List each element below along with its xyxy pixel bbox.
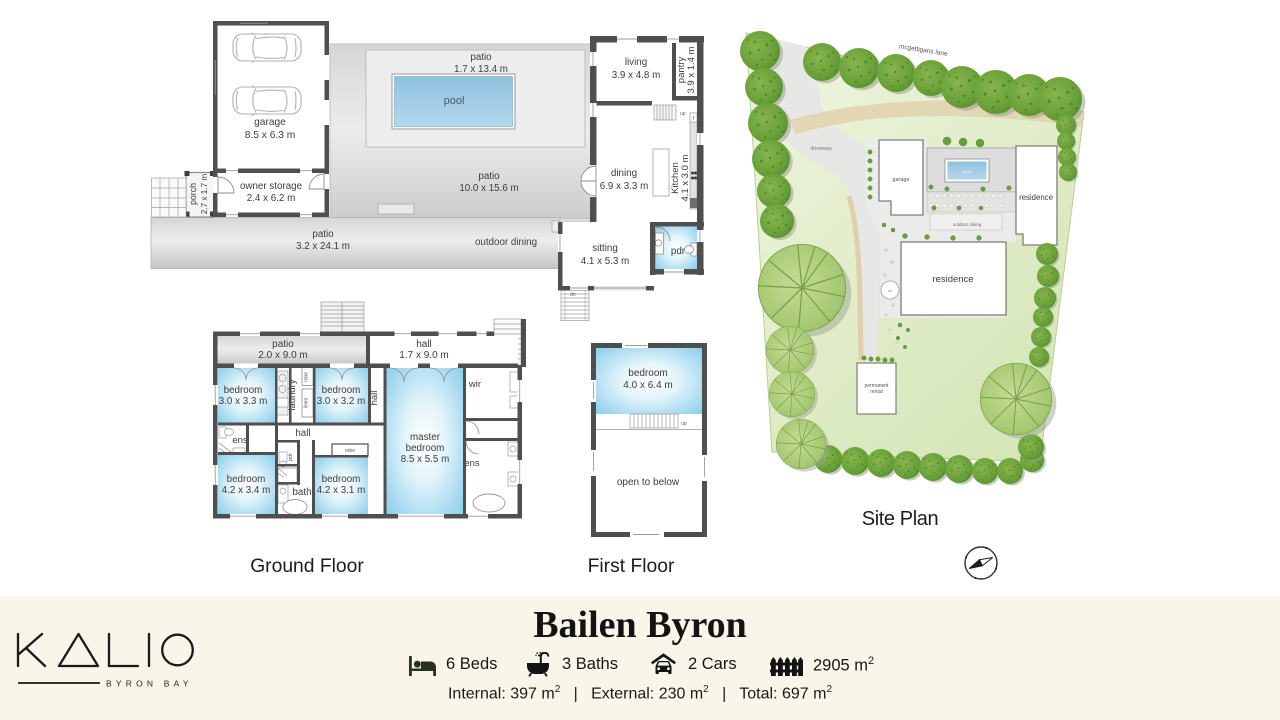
svg-text:dn: dn <box>570 292 576 298</box>
svg-text:2.7 x 1.7 m: 2.7 x 1.7 m <box>200 174 209 215</box>
svg-text:outdoor dining: outdoor dining <box>475 237 537 248</box>
svg-text:robe: robe <box>345 448 355 454</box>
svg-text:pdr: pdr <box>288 453 294 461</box>
svg-text:Site Plan: Site Plan <box>862 508 938 530</box>
svg-text:patio: patio <box>312 229 334 240</box>
svg-text:4.2 x 3.4 m: 4.2 x 3.4 m <box>222 485 270 496</box>
svg-text:ens: ens <box>464 458 480 469</box>
svg-text:up: up <box>680 111 686 117</box>
svg-text:2.4 x 6.2 m: 2.4 x 6.2 m <box>247 193 295 204</box>
svg-text:hall: hall <box>416 339 432 350</box>
svg-text:wir: wir <box>468 379 481 390</box>
svg-text:8.5 x 5.5 m: 8.5 x 5.5 m <box>401 454 449 465</box>
svg-text:3.2 x 24.1 m: 3.2 x 24.1 m <box>296 241 350 252</box>
svg-text:bedroom: bedroom <box>224 385 263 396</box>
svg-text:bedroom: bedroom <box>406 443 445 454</box>
svg-text:4.1 x 5.3 m: 4.1 x 5.3 m <box>581 256 629 267</box>
svg-text:sitting: sitting <box>592 243 618 254</box>
svg-text:3.9 x 4.8 m: 3.9 x 4.8 m <box>612 70 660 81</box>
svg-text:hall: hall <box>295 428 310 439</box>
svg-text:1.7 x 9.0 m: 1.7 x 9.0 m <box>399 350 448 361</box>
svg-text:porch: porch <box>188 183 198 205</box>
svg-text:mcgettigans lane: mcgettigans lane <box>898 43 948 58</box>
svg-text:linen: linen <box>304 398 310 409</box>
svg-text:robe: robe <box>304 372 310 382</box>
svg-text:garage: garage <box>254 117 286 128</box>
svg-text:master: master <box>410 432 441 443</box>
svg-text:patio: patio <box>470 52 492 63</box>
svg-text:pool: pool <box>444 95 465 107</box>
svg-text:bedroom: bedroom <box>227 474 266 485</box>
svg-text:patio: patio <box>478 171 500 182</box>
svg-text:laundry: laundry <box>287 379 298 410</box>
svg-text:rental: rental <box>870 389 883 395</box>
svg-text:bedroom: bedroom <box>322 474 361 485</box>
svg-text:4.2 x 3.1 m: 4.2 x 3.1 m <box>317 485 365 496</box>
svg-text:driveway: driveway <box>810 146 832 152</box>
svg-text:up: up <box>681 421 687 427</box>
svg-text:residence: residence <box>1019 193 1053 202</box>
svg-text:bath: bath <box>292 487 311 498</box>
svg-text:pdr: pdr <box>671 246 686 257</box>
svg-text:4.1 x 3.0 m: 4.1 x 3.0 m <box>680 154 691 201</box>
svg-text:dining: dining <box>611 168 637 179</box>
svg-text:patio: patio <box>272 339 294 350</box>
svg-text:bedroom: bedroom <box>322 385 361 396</box>
svg-text:2.0 x 9.0 m: 2.0 x 9.0 m <box>258 350 307 361</box>
svg-text:outdoor dining: outdoor dining <box>953 222 982 227</box>
svg-text:First Floor: First Floor <box>588 556 675 577</box>
svg-text:garage: garage <box>892 177 909 183</box>
svg-text:3.0 x 3.2 m: 3.0 x 3.2 m <box>317 396 365 407</box>
svg-text:1.7 x 13.4 m: 1.7 x 13.4 m <box>454 64 508 75</box>
svg-text:pool: pool <box>963 169 972 174</box>
svg-text:4.0 x 6.4 m: 4.0 x 6.4 m <box>623 380 672 391</box>
svg-text:bedroom: bedroom <box>628 368 667 379</box>
svg-text:10.0 x 15.6 m: 10.0 x 15.6 m <box>459 183 518 194</box>
svg-text:8.5 x 6.3 m: 8.5 x 6.3 m <box>245 130 295 141</box>
svg-text:living: living <box>625 57 647 68</box>
svg-text:owner storage: owner storage <box>240 181 303 192</box>
svg-text:ens: ens <box>232 435 248 446</box>
svg-text:3.0 x 3.3 m: 3.0 x 3.3 m <box>219 396 267 407</box>
svg-text:6.9 x 3.3 m: 6.9 x 3.3 m <box>600 181 648 192</box>
svg-text:3.9 x 1.4 m: 3.9 x 1.4 m <box>686 46 697 93</box>
svg-text:open to below: open to below <box>617 477 680 488</box>
svg-text:Ground Floor: Ground Floor <box>250 556 364 577</box>
svg-text:residence: residence <box>932 274 973 285</box>
